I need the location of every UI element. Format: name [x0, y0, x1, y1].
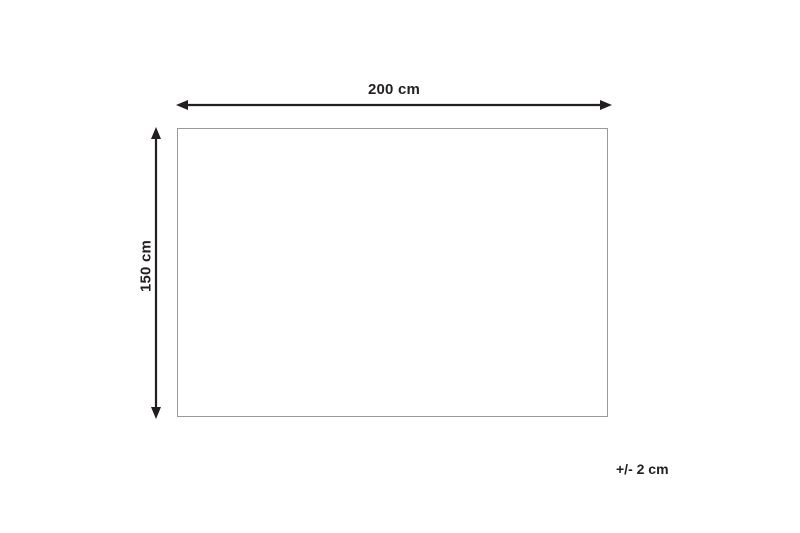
width-dimension-label: 200 cm [176, 81, 612, 98]
width-arrowhead-right [600, 100, 612, 110]
height-arrowhead-top [151, 127, 161, 139]
height-arrowhead-bottom [151, 407, 161, 419]
product-outline-rectangle [177, 128, 608, 417]
height-dimension-arrow-icon [149, 127, 163, 419]
width-arrowhead-left [176, 100, 188, 110]
tolerance-note: +/- 2 cm [616, 461, 669, 477]
width-dimension-arrow-icon [176, 98, 612, 112]
dimension-diagram: 200 cm 150 cm +/- 2 cm [0, 0, 800, 533]
